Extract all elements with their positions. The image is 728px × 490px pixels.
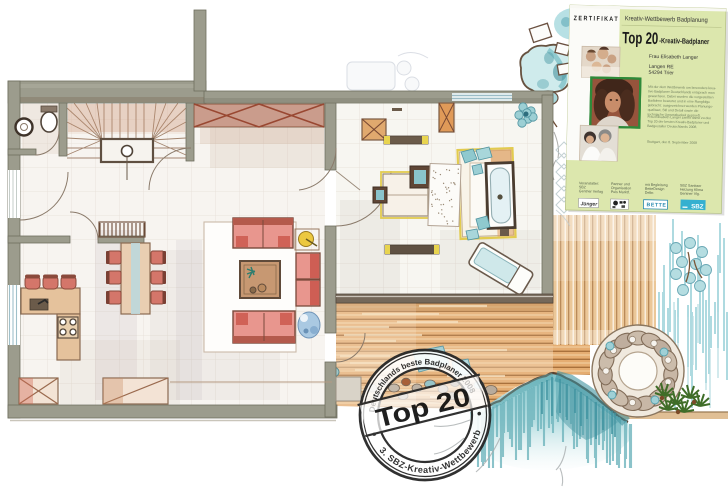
svg-text:Jünger: Jünger — [580, 201, 598, 207]
svg-text:54294 Trier: 54294 Trier — [648, 70, 674, 77]
svg-text:Gentner Verlag: Gentner Verlag — [579, 189, 603, 194]
svg-text:-Kreativ-Badplaner: -Kreativ-Badplaner — [659, 36, 709, 46]
svg-text:BETTE: BETTE — [646, 202, 666, 208]
svg-text:SBZ: SBZ — [691, 203, 704, 210]
svg-text:Top 20: Top 20 — [622, 29, 658, 48]
svg-text:Gentner Vlg.: Gentner Vlg. — [680, 192, 700, 196]
svg-text:Z E R T I F I K A T: Z E R T I F I K A T — [574, 15, 618, 23]
svg-text:Puls Marktf.: Puls Marktf. — [611, 190, 630, 194]
svg-text:Frau Elisabeth Langer: Frau Elisabeth Langer — [649, 54, 699, 61]
svg-text:Delbr.: Delbr. — [645, 191, 654, 195]
